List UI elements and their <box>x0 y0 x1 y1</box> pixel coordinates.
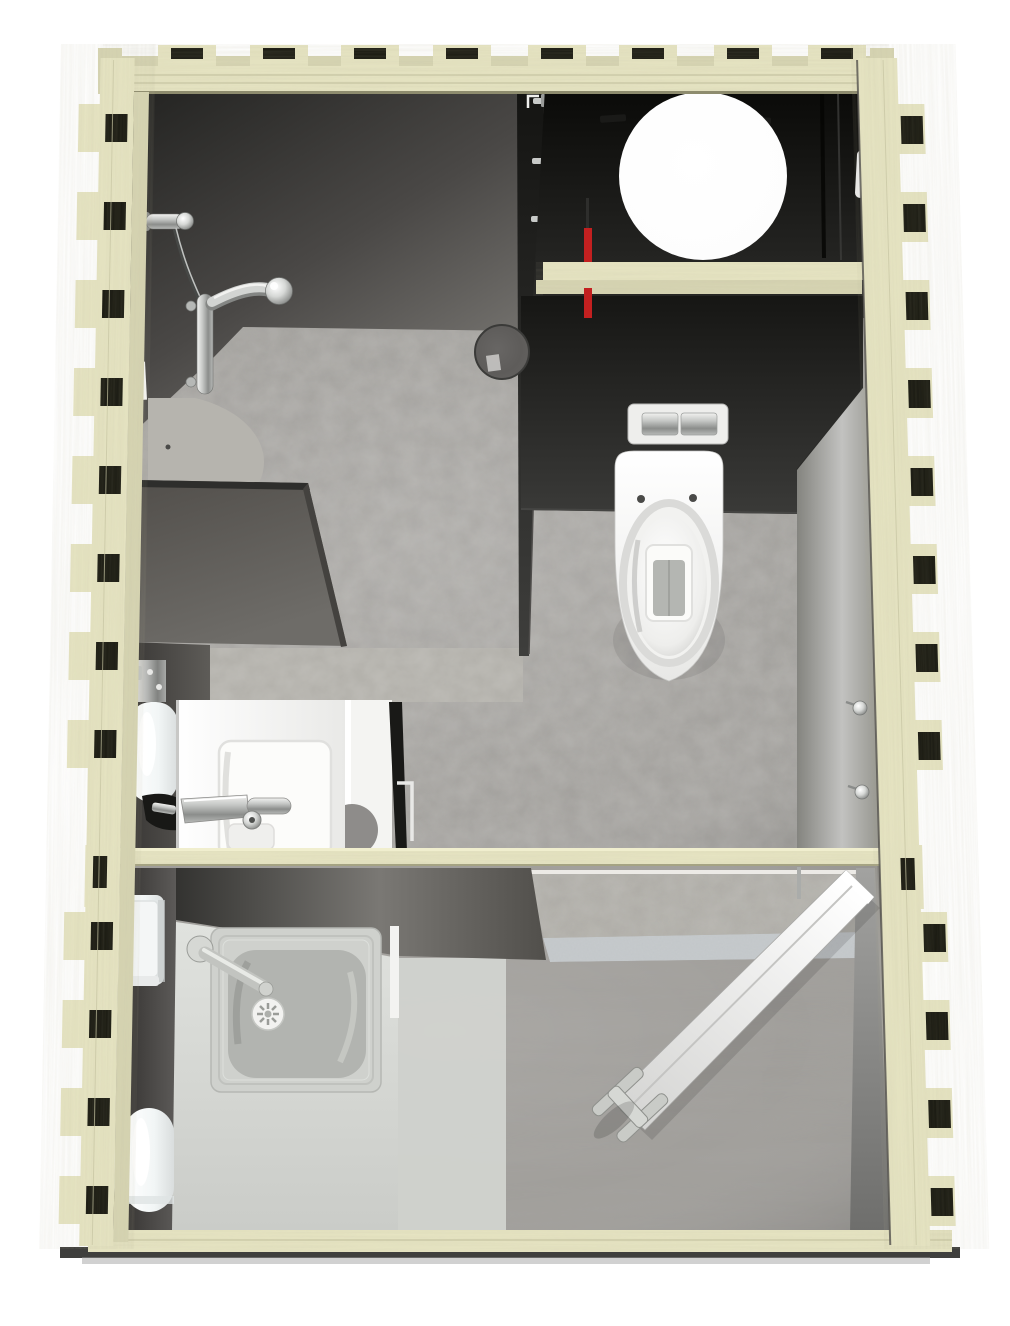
washbasin-backwall <box>207 648 523 702</box>
render-canvas <box>0 0 1010 1326</box>
sink <box>187 928 381 1092</box>
floorplan-render <box>0 0 1010 1326</box>
red-pipe <box>584 228 592 264</box>
floor-light-strip <box>398 958 506 1232</box>
red-pipe-lower <box>584 288 592 318</box>
timber-wall-top <box>98 44 894 94</box>
sink-drain <box>252 998 284 1030</box>
toilet <box>613 451 725 681</box>
utility-room <box>112 866 900 1234</box>
timber-sill-bottom <box>88 1230 952 1252</box>
flush-plate <box>628 404 728 444</box>
upper-rooms <box>56 88 900 870</box>
water-heater <box>619 92 787 260</box>
floor-drain <box>475 325 529 379</box>
